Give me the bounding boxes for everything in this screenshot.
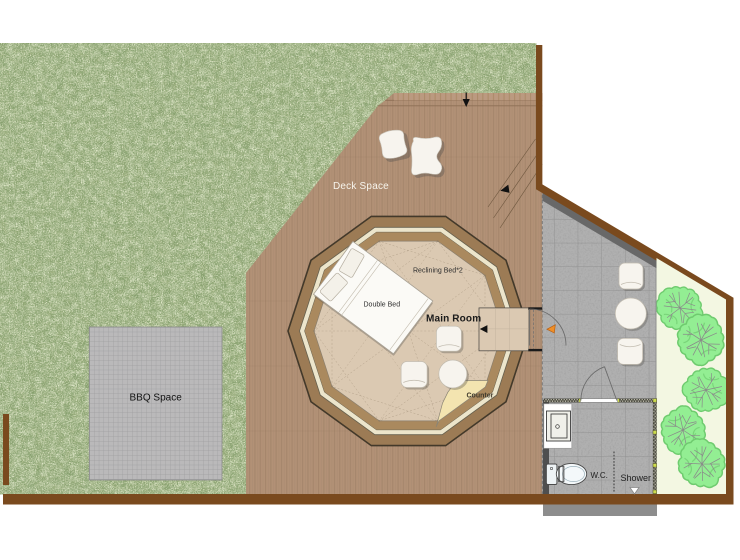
svg-text:Deck Space: Deck Space — [333, 181, 389, 192]
svg-text:BBQ Space: BBQ Space — [130, 393, 183, 404]
svg-text:Reclining Bed*2: Reclining Bed*2 — [413, 268, 463, 275]
svg-text:Shower: Shower — [621, 473, 652, 483]
svg-text:Main Room: Main Room — [426, 314, 481, 325]
svg-text:Counter: Counter — [467, 393, 494, 400]
svg-text:W.C.: W.C. — [591, 471, 608, 480]
svg-text:Double Bed: Double Bed — [364, 302, 401, 309]
